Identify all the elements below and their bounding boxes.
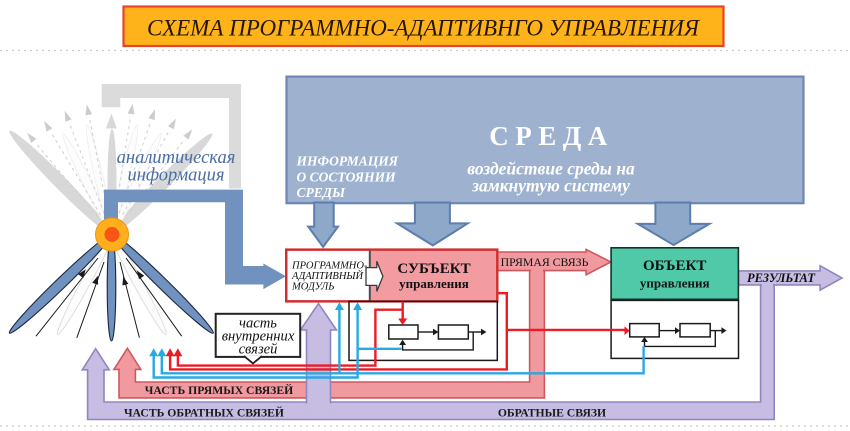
svg-text:замкнутую систему: замкнутую систему bbox=[471, 176, 630, 196]
svg-text:управления: управления bbox=[640, 276, 710, 291]
svg-text:ОБРАТНЫЕ СВЯЗИ: ОБРАТНЫЕ СВЯЗИ bbox=[498, 407, 606, 420]
svg-text:ИНФОРМАЦИЯ: ИНФОРМАЦИЯ bbox=[296, 154, 399, 169]
svg-text:ПРОГРАММНО-: ПРОГРАММНО- bbox=[291, 260, 368, 271]
svg-text:АДАПТИВНЫЙ: АДАПТИВНЫЙ bbox=[291, 270, 365, 282]
svg-text:СРЕДА: СРЕДА bbox=[489, 121, 614, 151]
svg-text:СХЕМА ПРОГРАММНО-АДАПТИВНГО УП: СХЕМА ПРОГРАММНО-АДАПТИВНГО УПРАВЛЕНИЯ bbox=[147, 16, 701, 41]
svg-text:ЧАСТЬ ПРЯМЫХ СВЯЗЕЙ: ЧАСТЬ ПРЯМЫХ СВЯЗЕЙ bbox=[145, 383, 293, 397]
svg-text:управления: управления bbox=[399, 276, 469, 291]
svg-text:О СОСТОЯНИИ: О СОСТОЯНИИ bbox=[297, 170, 397, 185]
svg-text:СРЕДЫ: СРЕДЫ bbox=[297, 185, 346, 200]
svg-text:ПРЯМАЯ СВЯЗЬ: ПРЯМАЯ СВЯЗЬ bbox=[501, 255, 589, 269]
svg-text:связей: связей bbox=[239, 342, 279, 358]
svg-text:МОДУЛЬ: МОДУЛЬ bbox=[291, 282, 334, 293]
svg-text:ЧАСТЬ ОБРАТНЫХ СВЯЗЕЙ: ЧАСТЬ ОБРАТНЫХ СВЯЗЕЙ bbox=[124, 406, 284, 420]
svg-text:ОБЪЕКТ: ОБЪЕКТ bbox=[643, 258, 706, 274]
svg-text:информация: информация bbox=[127, 166, 224, 186]
svg-text:СУБЪЕКТ: СУБЪЕКТ bbox=[397, 261, 470, 277]
svg-text:РЕЗУЛЬТАТ: РЕЗУЛЬТАТ bbox=[747, 271, 816, 285]
